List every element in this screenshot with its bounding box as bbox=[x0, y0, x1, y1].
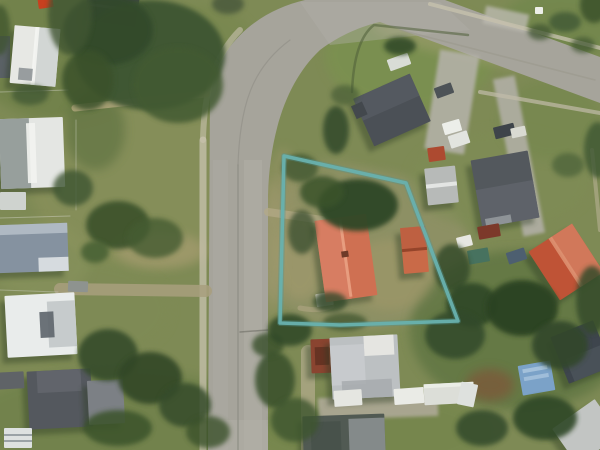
tree bbox=[384, 37, 416, 55]
tree bbox=[84, 410, 152, 446]
tree bbox=[186, 416, 230, 448]
dot-white-berm bbox=[535, 7, 543, 14]
tree bbox=[331, 85, 359, 105]
tree bbox=[288, 210, 316, 254]
truck-white-2-roof bbox=[393, 387, 424, 405]
road-lane-light-right bbox=[244, 160, 262, 450]
aerial-scene bbox=[0, 0, 600, 450]
shed-gray-mid bbox=[424, 165, 459, 205]
truck-white-bc-roof bbox=[333, 389, 362, 407]
house-l4-bluegray-facet bbox=[38, 257, 68, 272]
house-l2-white-facet bbox=[18, 68, 33, 81]
greenhouse-bl-roof bbox=[4, 428, 32, 448]
tree bbox=[513, 396, 577, 440]
house-parcel-main-facet bbox=[341, 251, 349, 258]
tree bbox=[81, 241, 109, 263]
tree bbox=[552, 153, 584, 177]
truck-red-container bbox=[427, 146, 446, 162]
tree bbox=[133, 47, 223, 123]
aerial-map-viewport[interactable] bbox=[0, 0, 600, 450]
house-l5-white bbox=[4, 292, 77, 358]
house-bc-gray bbox=[329, 334, 400, 399]
road-lane-light-left bbox=[213, 160, 228, 450]
house-l4-bluegray bbox=[0, 223, 69, 274]
tree bbox=[62, 50, 114, 110]
shed-l-small-roof bbox=[0, 371, 24, 389]
tree bbox=[271, 398, 319, 442]
porch-l3 bbox=[0, 192, 26, 210]
tree bbox=[528, 24, 552, 40]
greenhouse-bl-facet bbox=[4, 434, 32, 436]
car-gray-lane bbox=[68, 281, 88, 293]
house-bc-gray-facet bbox=[330, 344, 366, 386]
house-ne2-gray bbox=[471, 150, 540, 227]
truck-red-container-roof bbox=[427, 146, 446, 162]
tree bbox=[532, 321, 588, 369]
shed-l-small bbox=[0, 371, 24, 389]
truck-white-bc bbox=[333, 389, 362, 407]
tree bbox=[549, 12, 581, 32]
tree bbox=[127, 218, 183, 258]
truck-white-2 bbox=[393, 387, 424, 405]
tree bbox=[571, 37, 595, 53]
house-l6-dark-facet bbox=[37, 369, 82, 393]
porch-l3-roof bbox=[0, 192, 26, 210]
tree bbox=[323, 106, 349, 154]
tree bbox=[456, 410, 508, 446]
tree bbox=[12, 85, 48, 105]
house-bb-dark-facet bbox=[348, 418, 385, 450]
house-bc-gray-facet bbox=[363, 334, 394, 356]
dot-white-berm-roof bbox=[535, 7, 543, 14]
tree bbox=[313, 292, 347, 312]
tree bbox=[53, 170, 93, 206]
house-l5-white-facet bbox=[39, 311, 54, 338]
house-l3-gray bbox=[0, 117, 65, 189]
greenhouse-bl-facet bbox=[4, 440, 32, 442]
car-gray-lane-roof bbox=[68, 281, 88, 293]
greenhouse-bl bbox=[4, 428, 32, 448]
tree bbox=[268, 314, 312, 346]
